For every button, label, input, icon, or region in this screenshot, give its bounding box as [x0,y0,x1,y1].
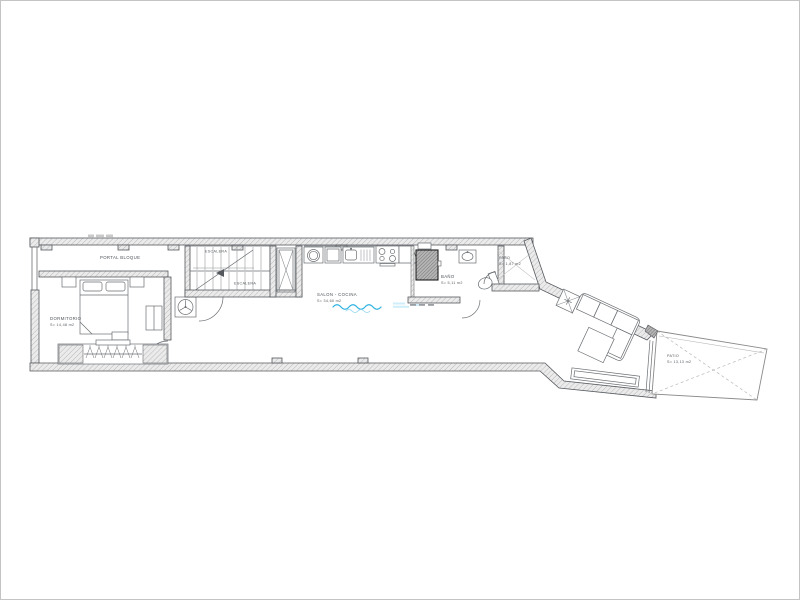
salon-cocina-label: SALON - COCINA [317,292,357,297]
paso-bottom-wall [492,284,539,291]
bench [112,332,128,340]
faucet-icon [350,248,352,250]
washbasin [459,250,476,263]
stair-bottom-wall [185,290,302,297]
bedroom-right-wall [164,277,171,340]
salon: SALON - COCINA S= 34,60 m2 [317,292,419,313]
water-symbol-2 [346,310,370,313]
washing-machine [304,247,323,263]
water-symbol [333,305,381,310]
patio: PATIO S= 13,13 m2 [645,325,767,400]
bathroom: BAÑO S= 5,11 m2 [408,243,504,318]
kitchen-sink [343,247,374,263]
portal-bloque-label: PORTAL BLOQUE [100,255,140,260]
bathroom-bottom-wall [408,297,460,303]
seating-area [556,289,641,387]
oven-handle [380,264,395,267]
dishwasher [325,247,341,263]
kitchen [304,246,418,266]
boiler-unit [175,297,196,317]
paso-label: PASO [499,256,510,260]
corridor-door-arc [199,297,223,321]
bed [80,280,128,334]
bedroom-top-wall [39,271,168,277]
bedroom: DORMITORIO S= 14,48 m2 [39,271,171,364]
dimension-marks [88,235,113,238]
counter-end [399,246,418,263]
nightstand-left [62,277,76,287]
bano-label: BAÑO [441,274,455,279]
bath-accessory-marks [410,304,434,306]
elevator-shaft [270,246,302,297]
bathroom-right-wall [498,246,504,288]
patio-label: PATIO [667,354,679,358]
stair-arrow-icon [216,269,224,277]
patio-area: S= 13,13 m2 [667,360,691,364]
bathroom-left-wall [411,246,414,299]
staircase: ESCALERA ESCALERA [185,246,302,297]
left-exterior-wall [30,238,39,363]
stove [376,246,399,266]
salon-cocina-area: S= 34,60 m2 [317,299,341,303]
dormitorio-label: DORMITORIO [50,316,82,321]
escalera-lower-label: ESCALERA [234,282,256,286]
patio-outline [652,331,767,400]
escalera-upper-label: ESCALERA [205,250,227,254]
nightstand-right [130,277,144,287]
floor-plan-drawing: PORTAL BLOQUE [0,0,800,600]
bathroom-door-arc [462,300,480,318]
floor-plan-canvas: PORTAL BLOQUE [0,0,800,600]
shower-column [416,243,441,280]
bano-area: S= 5,11 m2 [441,281,463,285]
wardrobe [58,340,168,364]
dormitorio-area: S= 14,48 m2 [50,323,74,327]
dresser [146,306,162,330]
stair-left-wall [185,246,190,297]
paso-area: S= 1,87 m2 [499,262,521,266]
